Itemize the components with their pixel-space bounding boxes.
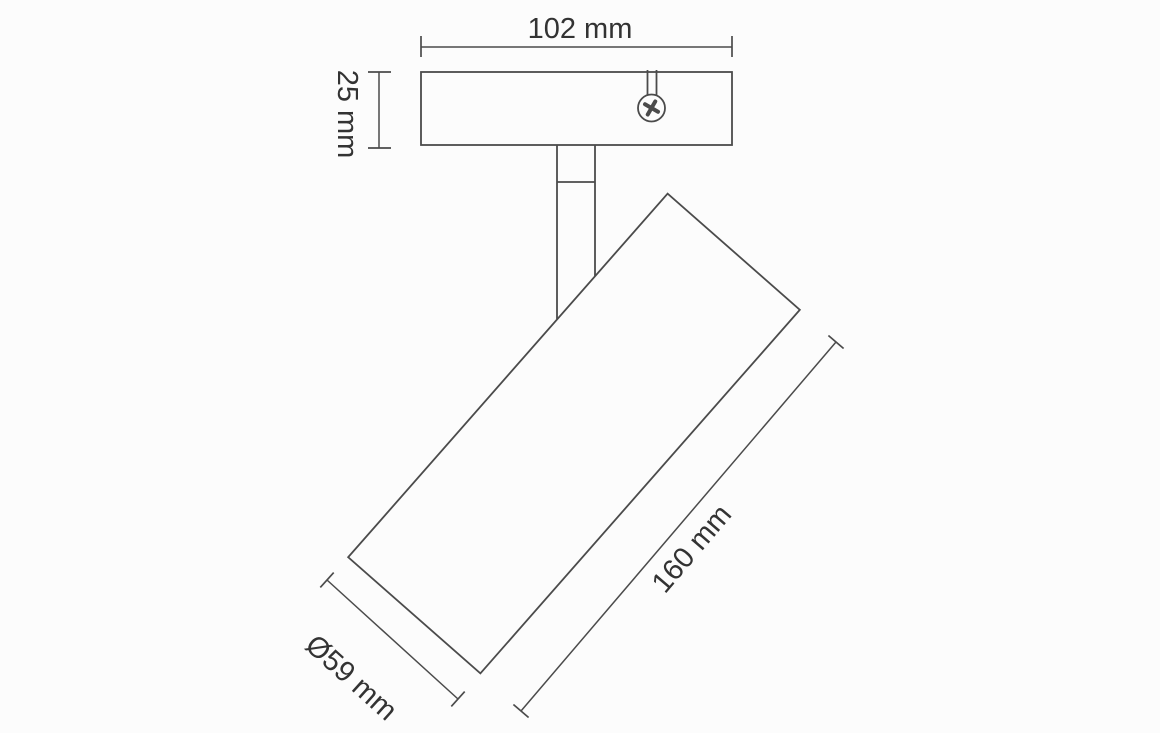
dimension-height: 25 mm	[331, 70, 391, 159]
length-dimension-tick-bottom	[513, 705, 528, 718]
length-dimension-tick-top	[828, 336, 843, 349]
spotlight-fixture	[348, 70, 800, 673]
height-dimension-label: 25 mm	[331, 70, 363, 159]
spotlight-body	[348, 194, 800, 674]
width-dimension-label: 102 mm	[528, 13, 633, 45]
diameter-dimension-label: Ø59 mm	[299, 629, 403, 727]
mounting-plate	[421, 72, 732, 145]
dimension-width: 102 mm	[421, 13, 732, 57]
spotlight-dimension-diagram: 102 mm 25 mm 160 mm Ø59 mm	[0, 0, 1160, 733]
technical-drawing-canvas: 102 mm 25 mm 160 mm Ø59 mm	[0, 0, 1160, 733]
